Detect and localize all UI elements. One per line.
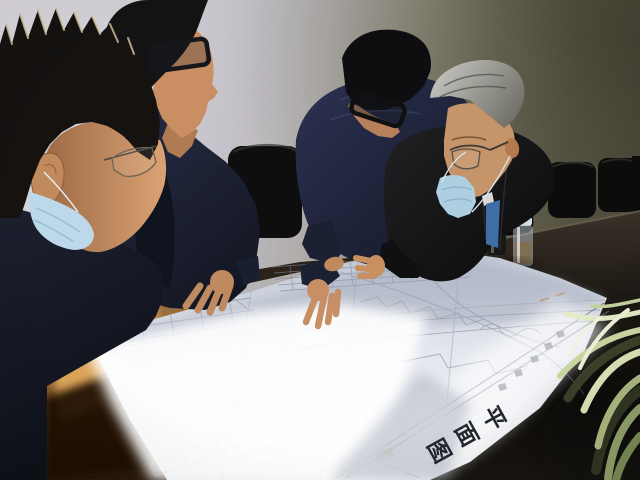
man-4-tie — [486, 200, 500, 248]
man-2-glasses — [148, 38, 209, 72]
meeting-room-photo: 图 面 平 — [0, 0, 640, 480]
scene-svg — [0, 0, 640, 480]
